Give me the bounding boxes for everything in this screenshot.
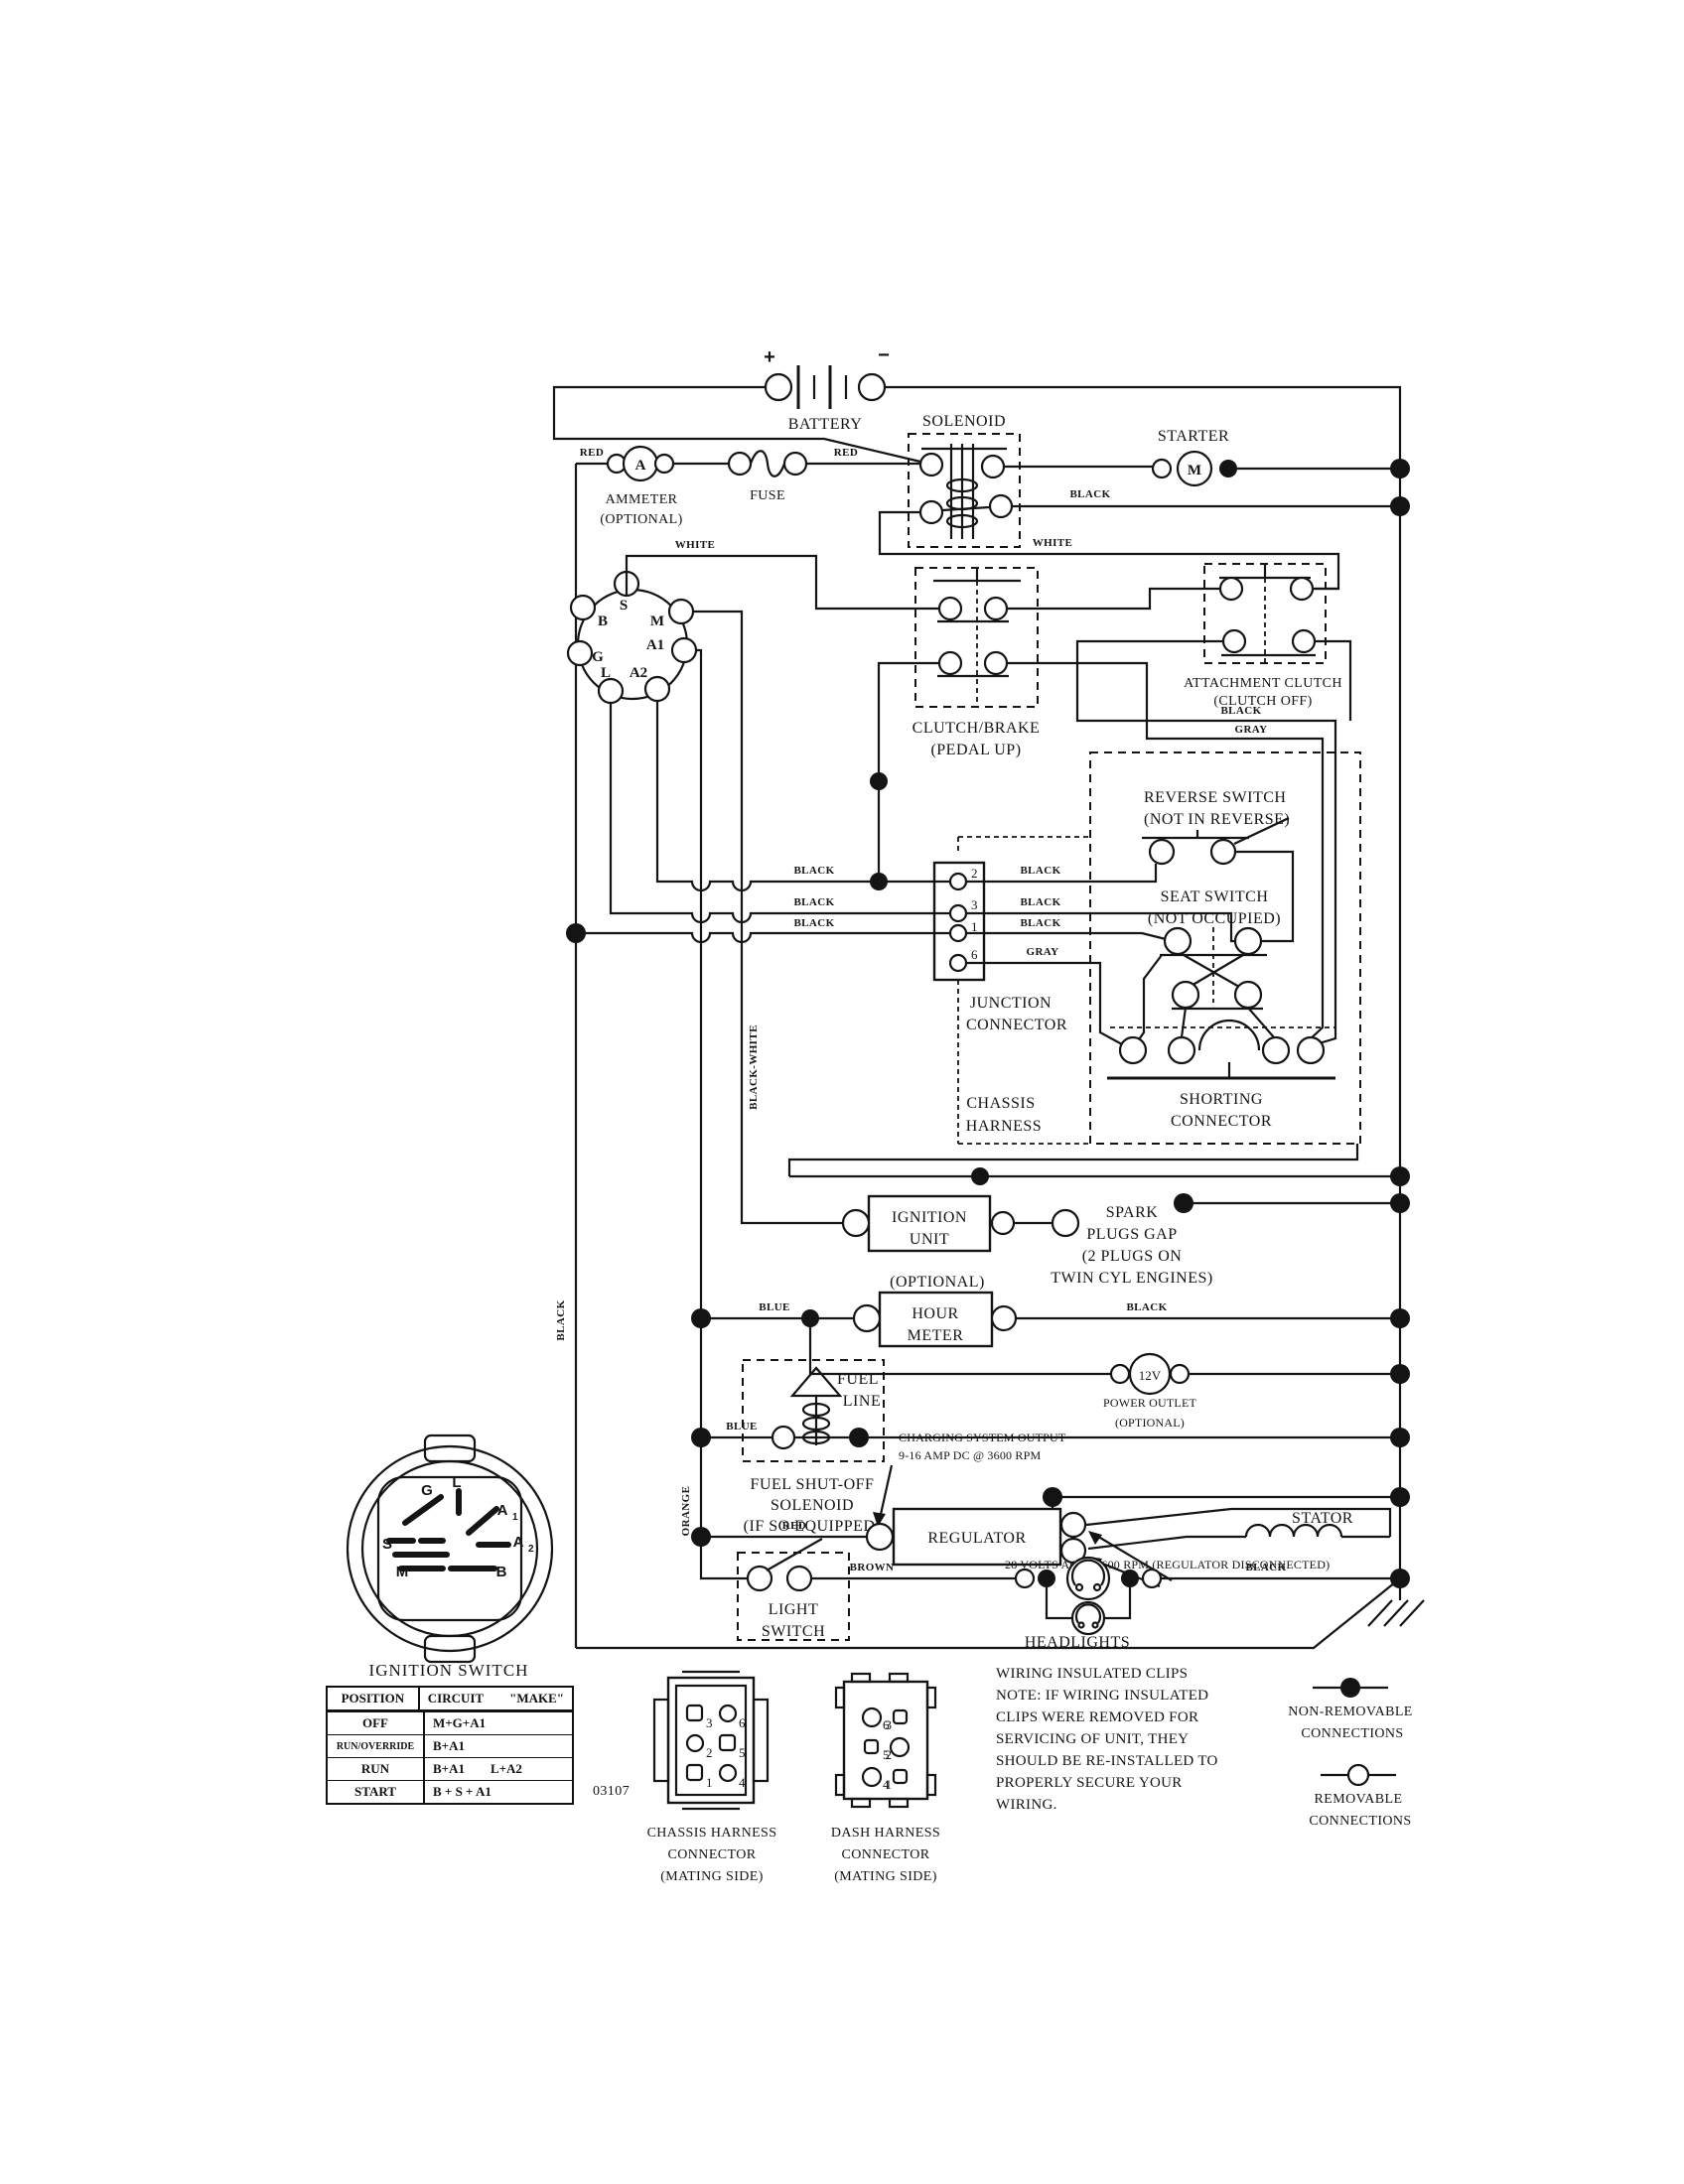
ignition-switch-table: POSITION CIRCUIT "MAKE" OFF M+G+A1 RUN/O… [326,1686,574,1805]
table-row-start: START B + S + A1 [328,1780,572,1803]
chassis-connector-label-1: CHASSIS HARNESS [647,1826,777,1841]
battery-plus-sign: + [764,346,775,368]
ground-icon [1368,1600,1424,1626]
face-pin-m: M [396,1564,409,1580]
wire-label-gray-1: GRAY [1235,724,1268,736]
stator-label: STATOR [1292,1510,1353,1527]
shorting-connector-label-1: SHORTING [1180,1091,1263,1108]
chassis-connector-label-2: CONNECTOR [668,1847,757,1862]
wire-label-red-3: RED [782,1520,806,1532]
chassis-pin-5: 5 [739,1745,746,1760]
seat-switch: SEAT SWITCH (NOT OCCUPIED) [1137,888,1281,1042]
wire-label-black-hour: BLACK [1126,1301,1167,1313]
hour-meter-label-1: HOUR [912,1305,958,1322]
reverse-switch-label-2: (NOT IN REVERSE) [1144,811,1290,828]
light-switch: LIGHT SWITCH [738,1539,849,1640]
wire-label-gray-2: GRAY [1027,946,1059,958]
ammeter-label-1: AMMETER [606,492,678,507]
dash-pin-2: 2 [886,1747,893,1762]
row-off-make: M+G+A1 [433,1715,486,1731]
solenoid-label: SOLENOID [922,413,1006,430]
dash-connector-label-2: CONNECTOR [842,1847,930,1862]
ignition-switch-connector: S B G L A2 A1 M [568,572,696,703]
fuse: FUSE RED [673,447,920,503]
ammeter-label-2: (OPTIONAL) [600,512,682,527]
legend-non-removable-2: CONNECTIONS [1301,1726,1403,1741]
regulator-label: REGULATOR [927,1530,1026,1547]
junction-pin-6: 6 [971,947,978,962]
legend-non-removable-1: NON-REMOVABLE [1288,1705,1413,1719]
ignition-switch-title: IGNITION SWITCH [369,1661,529,1680]
note-line-6: PROPERLY SECURE YOUR [996,1775,1183,1791]
dash-connector-label-3: (MATING SIDE) [834,1869,937,1884]
wire-label-black-headlights: BLACK [1245,1562,1286,1573]
fuel-solenoid-label-2: SOLENOID [771,1497,854,1514]
wire-label-black-starter: BLACK [1069,488,1110,500]
wire-label-black-j3: BLACK [793,896,834,908]
note-line-3: CLIPS WERE REMOVED FOR [996,1709,1198,1725]
spark-label-1: SPARK [1106,1204,1159,1221]
switch-drop-wires: BLACK-WHITE ORANGE BLACK BLACK BLACK [566,612,950,1578]
drawing-number: 03107 [593,1784,630,1799]
row-start-position: START [328,1781,425,1803]
junction-pin-3: 3 [971,897,978,912]
dash-harness-connector: 6 3 5 2 4 1 DASH HARNESS CONNECTOR (MATI… [831,1674,940,1884]
fuel-line-label-1: FUEL [837,1371,879,1388]
spark-label-2: PLUGS GAP [1086,1226,1177,1243]
clutch-brake-label-2: (PEDAL UP) [930,742,1021,758]
note-line-2: NOTE: IF WIRING INSULATED [996,1688,1208,1704]
face-pin-g: G [421,1482,433,1499]
ammeter: RED A AMMETER (OPTIONAL) [580,447,683,527]
terminal-a1: A1 [646,637,664,653]
terminal-g: G [592,649,604,665]
row-runoverride-make: B+A1 [433,1738,465,1754]
terminal-l: L [601,665,611,681]
header-make: "MAKE" [509,1691,564,1706]
power-outlet: 12V POWER OUTLET (OPTIONAL) [801,1309,1410,1430]
terminal-s: S [620,598,628,614]
wire-label-black-r2: BLACK [1020,865,1060,877]
note-line-5: SHOULD BE RE-INSTALLED TO [996,1753,1218,1769]
wire-label-black-white: BLACK-WHITE [748,1024,760,1110]
row-run-make-2: L+A2 [491,1761,522,1777]
ignition-unit-label-1: IGNITION [892,1209,967,1226]
seat-switch-label-1: SEAT SWITCH [1161,888,1269,905]
header-circuit: CIRCUIT [428,1691,484,1706]
charging-label-2: 9-16 AMP DC @ 3600 RPM [899,1448,1041,1462]
starter-label: STARTER [1158,428,1229,445]
row-runoverride-position: RUN/OVERRIDE [328,1735,425,1757]
starter-motor-symbol: M [1188,463,1201,478]
chassis-pin-4: 4 [739,1775,746,1790]
solenoid: SOLENOID [909,413,1020,547]
chassis-harness-label-2: HARNESS [966,1118,1042,1135]
table-row-run: RUN B+A1 L+A2 [328,1757,572,1780]
chassis-pin-3: 3 [706,1715,713,1730]
dash-pin-3: 3 [886,1717,893,1732]
ignition-unit-section: IGNITION UNIT SPARK PLUGS GAP (2 PLUGS O… [789,1144,1410,1287]
attachment-clutch-label-1: ATTACHMENT CLUTCH [1184,676,1342,691]
wire-label-blue-1: BLUE [759,1301,790,1313]
row-start-make: B + S + A1 [433,1784,491,1800]
chassis-pin-2: 2 [706,1745,713,1760]
fuel-solenoid-label-1: FUEL SHUT-OFF [751,1476,875,1493]
face-pin-b: B [496,1564,507,1580]
junction-pin-2: 2 [971,866,978,881]
power-outlet-value: 12V [1139,1368,1162,1383]
ammeter-symbol: A [635,458,646,474]
wiring-note: WIRING INSULATED CLIPS NOTE: IF WIRING I… [996,1666,1218,1813]
fuel-line-label-2: LINE [843,1393,881,1410]
wire-label-blue-2: BLUE [726,1421,758,1433]
terminal-b: B [598,614,608,629]
face-pin-s: S [382,1536,392,1553]
note-line-7: WIRING. [996,1797,1057,1813]
header-circuit-make: CIRCUIT "MAKE" [420,1688,572,1709]
hour-meter-label-2: METER [908,1327,964,1344]
dash-connector-label-1: DASH HARNESS [831,1826,940,1841]
light-switch-label-1: LIGHT [769,1601,818,1618]
junction-label-1: JUNCTION [970,995,1052,1012]
header-position: POSITION [328,1688,420,1709]
note-line-1: WIRING INSULATED CLIPS [996,1666,1188,1682]
legend-removable-1: REMOVABLE [1315,1792,1403,1807]
junction-pin-1: 1 [971,919,978,934]
chassis-harness-connector: 3 6 2 5 1 4 CHASSIS HARNESS CONNECTOR (M… [647,1672,777,1884]
wire-label-black-r3: BLACK [1020,896,1060,908]
battery: + − BATTERY [764,344,890,433]
hour-meter-optional: (OPTIONAL) [890,1274,985,1291]
battery-minus-sign: − [878,344,890,366]
table-header-row: POSITION CIRCUIT "MAKE" [328,1688,572,1711]
light-switch-label-2: SWITCH [762,1623,825,1640]
wire-label-orange: ORANGE [680,1486,692,1537]
terminal-m: M [650,614,664,629]
wire-label-black-attachment: BLACK [1220,705,1261,717]
wire-label-black-j2: BLACK [793,865,834,877]
ignition-switch-face: G L A 1 A 2 S M B IGNITION SWITCH [348,1435,552,1680]
fuse-label: FUSE [750,488,785,503]
face-pin-a2-sub: 2 [528,1544,534,1555]
battery-label: BATTERY [788,416,863,433]
table-row-run-override: RUN/OVERRIDE B+A1 [328,1734,572,1757]
face-pin-a1: A [497,1502,508,1519]
shorting-connector-label-2: CONNECTOR [1171,1113,1272,1130]
terminal-a2: A2 [630,665,647,681]
headlights: BROWN BLACK HEADLIGHTS [811,1558,1410,1651]
chassis-harness-label-1: CHASSIS [966,1095,1035,1112]
row-off-position: OFF [328,1712,425,1734]
wiring-diagram-page: { "wire_colors": { "red": "RED", "black"… [0,0,1684,2184]
dash-pin-1: 1 [886,1777,893,1792]
chassis-pin-1: 1 [706,1775,713,1790]
row-run-position: RUN [328,1758,425,1780]
wire-label-red-1: RED [580,447,604,459]
wire-label-white-1: WHITE [675,539,716,551]
charging-label-1: CHARGING SYSTEM OUTPUT [899,1431,1066,1444]
legend-removable-2: CONNECTIONS [1309,1814,1411,1829]
table-row-off: OFF M+G+A1 [328,1711,572,1734]
spark-label-4: TWIN CYL ENGINES) [1051,1270,1212,1287]
connection-legend: NON-REMOVABLE CONNECTIONS REMOVABLE CONN… [1288,1678,1413,1829]
seat-switch-label-2: (NOT OCCUPIED) [1148,910,1281,927]
reverse-switch-label-1: REVERSE SWITCH [1144,789,1286,806]
headlights-label: HEADLIGHTS [1025,1634,1130,1651]
spark-label-3: (2 PLUGS ON [1082,1248,1183,1265]
clutch-brake-label-1: CLUTCH/BRAKE [912,720,1041,737]
removable-connection-icon [1348,1765,1368,1785]
non-removable-connection-icon [1340,1678,1360,1698]
row-run-make-1: B+A1 [433,1761,465,1777]
wire-label-black-r1: BLACK [1020,917,1060,929]
wire-label-red-2: RED [834,447,858,459]
face-pin-a1-sub: 1 [512,1512,518,1523]
note-line-4: SERVICING OF UNIT, THEY [996,1731,1189,1747]
ignition-unit-label-2: UNIT [910,1231,949,1248]
power-outlet-label-1: POWER OUTLET [1103,1396,1197,1410]
wire-label-white-2: WHITE [1033,537,1073,549]
wire-label-brown: BROWN [850,1562,895,1573]
face-pin-l: L [452,1474,461,1491]
chassis-connector-label-3: (MATING SIDE) [660,1869,764,1884]
wire-label-black-vertical: BLACK [555,1299,567,1340]
chassis-pin-6: 6 [739,1715,746,1730]
wire-label-black-j1: BLACK [793,917,834,929]
power-outlet-label-2: (OPTIONAL) [1115,1416,1185,1430]
face-pin-a2: A [513,1534,524,1551]
fuel-solenoid-label-3: (IF SO EQUIPPED) [744,1518,882,1535]
starter: STARTER M BLACK [1004,428,1410,516]
attachment-clutch-switch: ATTACHMENT CLUTCH (CLUTCH OFF) [1007,564,1342,709]
junction-label-2: CONNECTOR [966,1017,1067,1033]
schematic-canvas: BLACK + − BATTERY RED A AMMETER (OPTIONA… [0,0,1684,2184]
